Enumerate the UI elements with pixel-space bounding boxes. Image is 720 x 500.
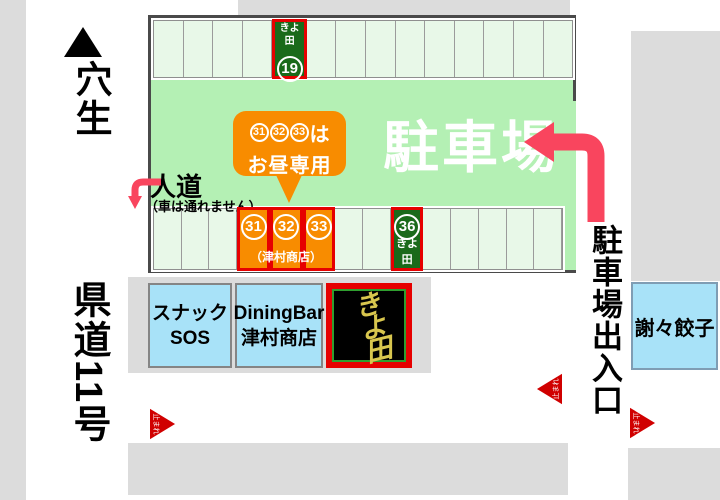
reserved-cell-label: きよ田 — [275, 22, 304, 48]
parking-cell — [243, 21, 273, 77]
right-parcel — [631, 31, 720, 281]
building-gyoza: 謝々餃子 — [631, 282, 718, 370]
circled-31: 31 — [250, 123, 269, 142]
lot-border-right — [573, 15, 576, 101]
parking-cell — [484, 21, 514, 77]
lot-border-top — [148, 15, 576, 18]
parking-cell — [336, 21, 366, 77]
stop-marker-right-1: 止まれ — [146, 405, 180, 443]
circled-33: 33 — [290, 123, 309, 142]
parking-cell-reserved-19: きよ田19 — [272, 19, 307, 79]
direction-anoo-label: 穴生 — [63, 60, 117, 138]
callout-line1: 31 32 33 は — [233, 118, 346, 147]
circled-32: 32 — [270, 123, 289, 142]
parking-cell — [366, 21, 396, 77]
stop-marker-text: 止まれ — [152, 414, 161, 435]
parking-row-bottom: 31323336きよ田（津村商店） — [153, 208, 563, 270]
stop-marker-text: 止まれ — [632, 413, 641, 434]
circled-number: 19 — [277, 56, 303, 82]
lot-border-left — [148, 15, 151, 273]
snack-line2: SOS — [170, 326, 210, 351]
entrance-arrow-icon — [522, 116, 608, 226]
parking-cell — [423, 209, 451, 269]
parking-cell — [213, 21, 243, 77]
parking-cell — [396, 21, 426, 77]
building-diningbar-tsumura: DiningBar 津村商店 — [235, 283, 323, 368]
building-snack-sos: スナック SOS — [148, 283, 232, 368]
left-road — [0, 0, 26, 500]
dining-line1: DiningBar — [234, 301, 325, 326]
dining-line2: 津村商店 — [241, 326, 317, 351]
stop-marker-right-2: 止まれ — [626, 404, 660, 442]
stop-marker-left: 止まれ — [532, 370, 566, 408]
parking-cell-reserved-36: 36きよ田 — [391, 207, 424, 271]
bottom-road-right — [628, 448, 720, 500]
parking-cell — [363, 209, 391, 269]
lunch-cells-caption: （津村商店） — [226, 248, 346, 265]
parking-cell — [154, 21, 184, 77]
circled-number: 33 — [306, 214, 332, 240]
parking-cell — [307, 21, 337, 77]
gyoza-name: 謝々餃子 — [635, 312, 715, 341]
walkway-arrow-icon — [127, 172, 163, 212]
circled-number: 32 — [273, 214, 299, 240]
parking-cell — [479, 209, 507, 269]
parking-cell — [182, 209, 210, 269]
access-map: 穴生 県道11号 きよ田19 31323336きよ田（津村商店） 駐車場 31 … — [0, 0, 720, 500]
entrance-label: 駐車場出入口 — [586, 224, 622, 416]
north-triangle-icon — [64, 27, 102, 57]
parking-cell — [514, 21, 544, 77]
parking-cell — [544, 21, 573, 77]
parking-cell — [425, 21, 455, 77]
reserved-cell-label: きよ田 — [394, 235, 421, 267]
parking-cell — [455, 21, 485, 77]
stop-marker-text: 止まれ — [551, 379, 560, 400]
top-road — [238, 0, 570, 16]
prefroute11-label: 県道11号 — [61, 280, 116, 444]
kiyota-sign-board: きよ田 — [332, 289, 406, 362]
bottom-road-left — [128, 443, 568, 495]
lot-border-bottom — [148, 270, 576, 273]
parking-cell — [184, 21, 214, 77]
parking-row-top: きよ田19 — [153, 20, 573, 78]
building-kiyota-sign: きよ田 — [326, 283, 412, 368]
callout-pointer — [276, 175, 302, 203]
circled-number: 31 — [241, 214, 267, 240]
parking-cell — [451, 209, 479, 269]
callout-line2: お昼専用 — [233, 149, 346, 178]
callout-suffix: は — [310, 118, 330, 147]
snack-line1: スナック — [152, 301, 228, 326]
parking-cell — [154, 209, 182, 269]
lunch-only-callout: 31 32 33 は お昼専用 — [233, 111, 346, 176]
kiyota-sign-text: きよ田 — [342, 287, 397, 363]
